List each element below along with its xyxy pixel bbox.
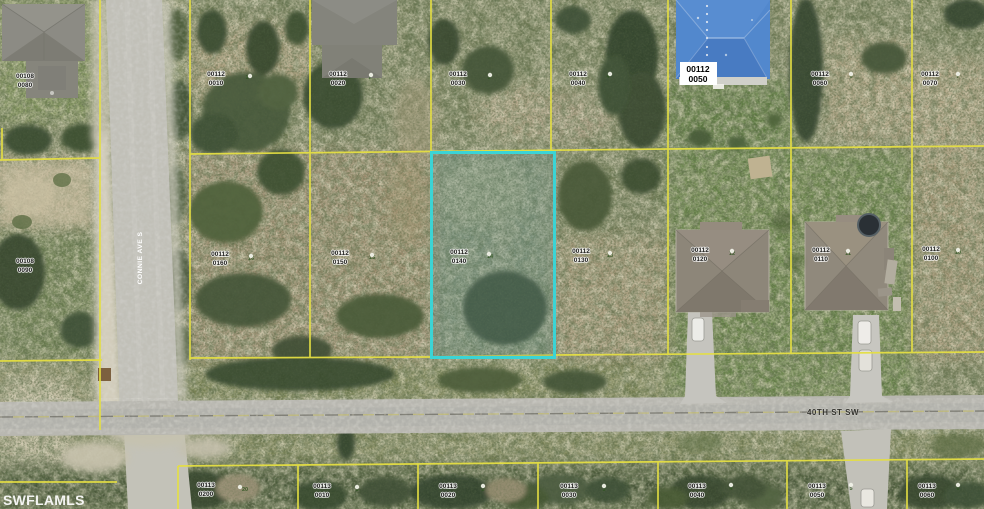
svg-text:0140: 0140 [452, 258, 467, 265]
svg-text:00112: 00112 [450, 249, 468, 256]
svg-text:0010: 0010 [315, 492, 330, 499]
svg-text:0020: 0020 [441, 492, 456, 499]
svg-text:00113: 00113 [688, 483, 706, 490]
svg-text:00112: 00112 [331, 250, 349, 257]
svg-text:0100: 0100 [924, 255, 939, 262]
svg-text:40TH ST SW: 40TH ST SW [807, 408, 859, 417]
svg-text:00112: 00112 [922, 246, 940, 253]
svg-text:00112: 00112 [686, 64, 709, 74]
svg-text:00113: 00113 [439, 483, 457, 490]
svg-text:00112: 00112 [572, 248, 590, 255]
svg-text:0070: 0070 [923, 80, 938, 87]
svg-text:00108: 00108 [16, 73, 34, 80]
svg-text:0060: 0060 [813, 80, 828, 87]
svg-text:00113: 00113 [560, 483, 578, 490]
svg-text:0040: 0040 [571, 80, 586, 87]
svg-text:00113: 00113 [313, 483, 331, 490]
svg-text:00112: 00112 [207, 71, 225, 78]
svg-text:00113: 00113 [197, 482, 215, 489]
svg-text:0110: 0110 [814, 256, 828, 263]
svg-text:SWFLAMLS: SWFLAMLS [3, 492, 85, 508]
svg-text:00112: 00112 [449, 71, 467, 78]
svg-text:0030: 0030 [451, 80, 466, 87]
svg-text:0150: 0150 [333, 259, 348, 266]
svg-text:0200: 0200 [199, 491, 214, 498]
svg-text:00112: 00112 [329, 71, 347, 78]
svg-text:0050: 0050 [810, 492, 825, 499]
svg-text:0160: 0160 [213, 260, 228, 267]
svg-text:00112: 00112 [921, 71, 939, 78]
svg-text:00112: 00112 [811, 71, 829, 78]
svg-text:00112: 00112 [211, 251, 229, 258]
svg-text:0130: 0130 [574, 257, 589, 264]
svg-text:0020: 0020 [331, 80, 346, 87]
svg-text:0080: 0080 [18, 82, 33, 89]
svg-text:0090: 0090 [18, 267, 33, 274]
svg-text:00112: 00112 [812, 247, 830, 254]
svg-text:20: 20 [242, 487, 248, 493]
svg-text:00112: 00112 [569, 71, 587, 78]
svg-text:0030: 0030 [562, 492, 577, 499]
svg-text:0120: 0120 [693, 256, 708, 263]
svg-text:0050: 0050 [689, 74, 708, 84]
svg-text:00112: 00112 [691, 247, 709, 254]
svg-text:0010: 0010 [209, 80, 224, 87]
svg-text:00113: 00113 [808, 483, 826, 490]
svg-text:00108: 00108 [16, 258, 34, 265]
svg-text:CONNIE AVE S: CONNIE AVE S [137, 232, 144, 285]
svg-text:0040: 0040 [690, 492, 705, 499]
svg-text:00113: 00113 [918, 483, 936, 490]
svg-text:0060: 0060 [920, 492, 935, 499]
